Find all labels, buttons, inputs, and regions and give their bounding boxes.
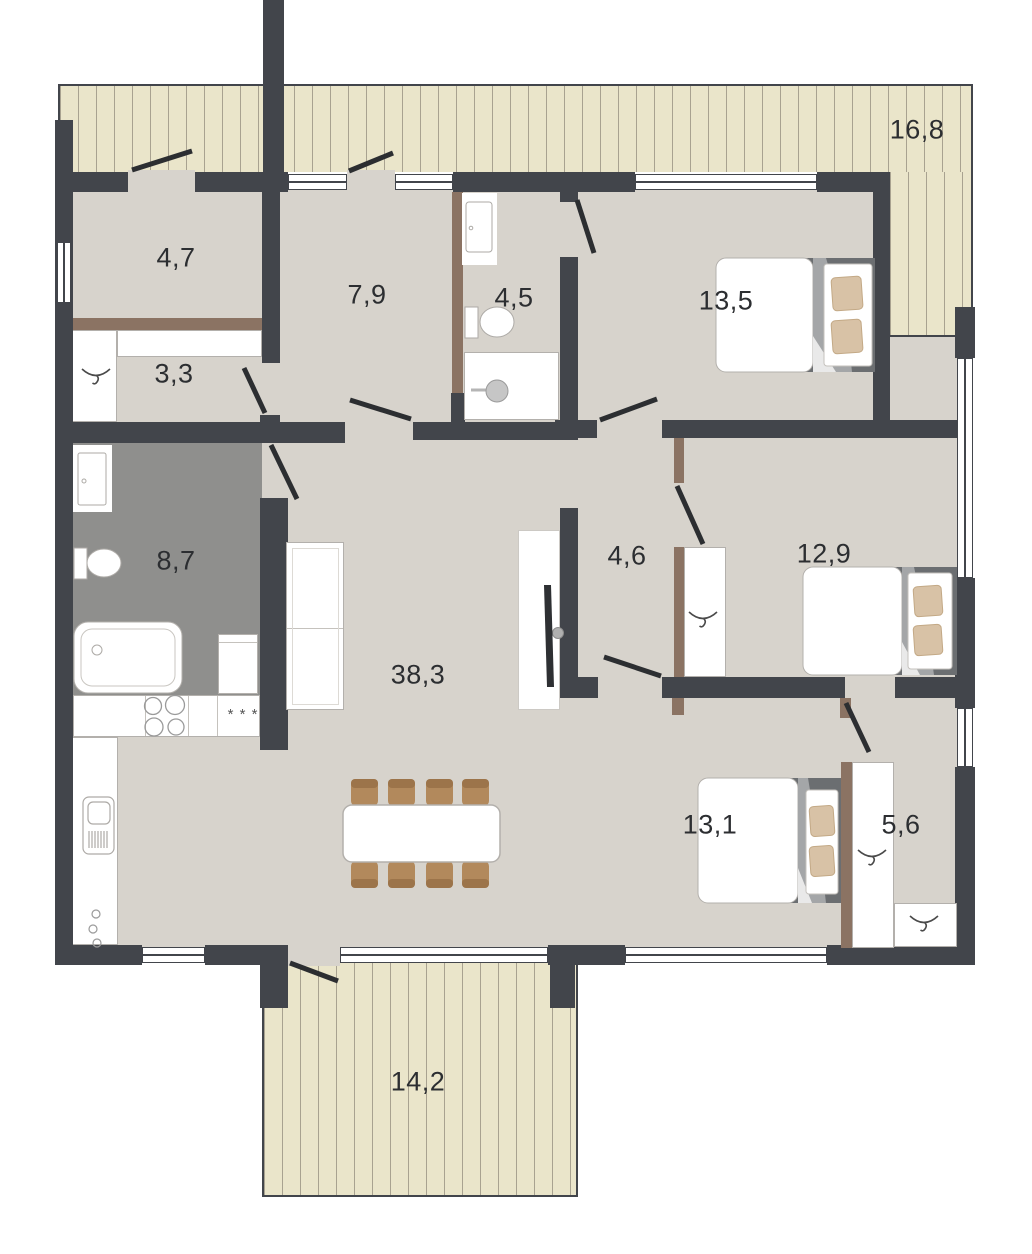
floor-plan: * * * 16,8 4,7 7,9 4,5 13,5 3,3 8,7 38,3… (0, 0, 1032, 1254)
room-label-terrace-bottom: 14,2 (391, 1067, 446, 1098)
room-label-living-kitchen: 38,3 (391, 660, 446, 691)
room-label-terrace-top: 16,8 (890, 115, 945, 146)
room-label-bedroom2: 12,9 (797, 539, 852, 570)
double-bed (803, 567, 957, 675)
room-label-bathroom: 8,7 (156, 546, 195, 577)
room-label-bedroom3: 13,1 (683, 810, 738, 841)
tv-icon (544, 585, 564, 687)
hanger-icon (689, 612, 717, 627)
stove-icon (145, 696, 185, 737)
hanger-icon (82, 369, 110, 384)
dining-set (343, 779, 500, 888)
double-bed (698, 778, 841, 903)
room-label-storage: 4,7 (156, 243, 195, 274)
room-label-bedroom1: 13,5 (699, 286, 754, 317)
room-label-entry: 3,3 (154, 359, 193, 390)
bathroom-sink-icon (78, 453, 106, 505)
counter-knobs-icon (89, 910, 101, 947)
toilet-icon (74, 548, 121, 579)
plan-details-layer (0, 0, 1032, 1254)
room-label-corridor: 4,6 (607, 541, 646, 572)
bathtub-icon (74, 622, 182, 693)
kitchen-sink-icon (83, 797, 114, 854)
hanger-icon (910, 916, 938, 931)
shower-head-icon (471, 380, 508, 402)
room-label-hall: 7,9 (347, 280, 386, 311)
dishwasher-marks: * * * (222, 706, 264, 723)
shower-sink-icon (466, 202, 492, 252)
room-label-wardrobe: 5,6 (881, 810, 920, 841)
hanger-icon (858, 850, 886, 865)
room-label-shower-room: 4,5 (494, 283, 533, 314)
